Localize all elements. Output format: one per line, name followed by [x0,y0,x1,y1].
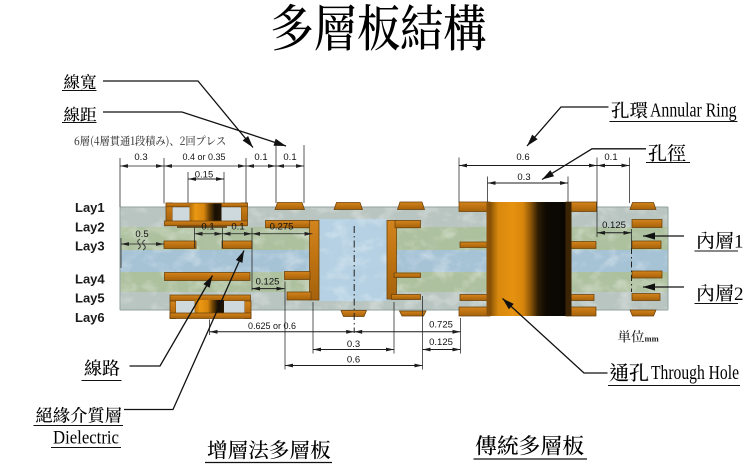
svg-text:1: 1 [734,232,744,253]
svg-text:0.1: 0.1 [231,222,244,233]
svg-text:0.125: 0.125 [429,337,453,348]
svg-text:Lay5: Lay5 [75,291,105,306]
svg-text:Lay1: Lay1 [75,200,105,215]
svg-text:0.625 or 0.6: 0.625 or 0.6 [248,321,296,331]
svg-text:0.1: 0.1 [604,152,617,163]
svg-text:0.5: 0.5 [135,229,148,240]
svg-text:0.275: 0.275 [270,222,294,233]
svg-text:Lay6: Lay6 [75,310,105,325]
svg-text:Annular Ring: Annular Ring [650,101,737,122]
svg-text:0.125: 0.125 [602,220,626,231]
svg-text:0.15: 0.15 [195,170,214,181]
svg-text:0.3: 0.3 [517,172,530,183]
svg-text:Dielectric: Dielectric [53,429,119,449]
svg-text:0.1: 0.1 [283,152,296,163]
svg-text:0.6: 0.6 [347,355,360,366]
svg-text:0.725: 0.725 [429,320,453,331]
svg-text:0.6: 0.6 [516,152,529,163]
svg-text:0.125: 0.125 [256,277,280,288]
svg-text:0.4 or 0.35: 0.4 or 0.35 [182,152,225,162]
svg-text:0.1: 0.1 [254,152,267,163]
svg-text:2: 2 [734,284,744,305]
svg-text:Lay3: Lay3 [75,239,105,254]
svg-text:mm: mm [645,334,659,344]
svg-text:Lay2: Lay2 [75,220,105,235]
svg-text:0.1: 0.1 [201,222,214,233]
svg-text:0.3: 0.3 [347,339,360,350]
svg-text:Through Hole: Through Hole [651,362,739,384]
svg-text:0.3: 0.3 [134,152,147,163]
svg-text:Lay4: Lay4 [75,272,105,287]
